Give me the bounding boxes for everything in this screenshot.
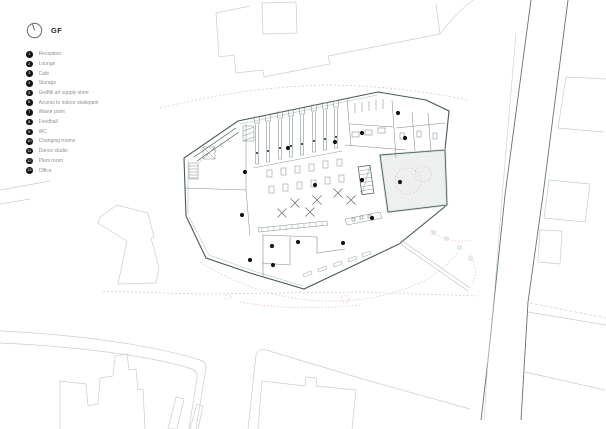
legend-number-badge: 11 <box>26 148 33 155</box>
legend-number-badge: 13 <box>26 167 33 174</box>
plan-marker <box>243 170 247 174</box>
legend-item: 5 Graffiti art supply store <box>26 90 99 97</box>
legend-item: 12 Plant room <box>26 158 99 165</box>
plan-marker <box>398 180 402 184</box>
legend-item-label: Storage <box>39 80 57 86</box>
legend-item-label: Office <box>39 168 52 174</box>
legend-item: 1 Reception <box>26 51 99 58</box>
north-arrow-icon <box>26 22 43 39</box>
legend-item-label: Access to indoor skatepark <box>39 100 99 106</box>
legend-number-badge: 7 <box>26 109 33 116</box>
dance-studio-room <box>380 150 447 212</box>
legend-number-badge: 6 <box>26 99 33 106</box>
legend-item-label: WC <box>39 129 47 135</box>
legend-item: 7 Waste point <box>26 109 99 116</box>
legend-item-label: Waste point <box>39 109 65 115</box>
plan-marker <box>396 111 400 115</box>
plan-marker <box>333 140 337 144</box>
plan-marker <box>313 183 317 187</box>
legend-item-label: Changing rooms <box>39 138 76 144</box>
plan-marker <box>248 258 252 262</box>
legend-list: 1 Reception 2 Lounge 3 Cafe 4 Storage 5 … <box>26 51 99 174</box>
legend-item-label: Lounge <box>39 61 56 67</box>
legend-item: 8 Foodhall <box>26 119 99 126</box>
legend-number-badge: 8 <box>26 119 33 126</box>
plan-marker <box>240 213 244 217</box>
plan-marker <box>403 136 407 140</box>
plan-marker <box>360 178 364 182</box>
floor-label: GF <box>51 26 62 35</box>
legend-item-label: Graffiti art supply store <box>39 90 89 96</box>
legend-item-label: Foodhall <box>39 119 58 125</box>
legend-item: 4 Storage <box>26 80 99 87</box>
legend-number-badge: 3 <box>26 70 33 77</box>
legend-panel: GF 1 Reception 2 Lounge 3 Cafe 4 Storage… <box>26 22 99 177</box>
legend-header: GF <box>26 22 99 39</box>
legend-number-badge: 1 <box>26 51 33 58</box>
legend-item-label: Reception <box>39 51 62 57</box>
legend-item: 11 Dance studio <box>26 148 99 155</box>
building-footprint <box>184 92 472 291</box>
streets <box>440 0 568 420</box>
plan-marker <box>271 263 275 267</box>
legend-item: 2 Lounge <box>26 61 99 68</box>
plan-marker <box>370 216 374 220</box>
plan-marker <box>286 146 290 150</box>
site-plan-page: GF 1 Reception 2 Lounge 3 Cafe 4 Storage… <box>0 0 606 429</box>
legend-item: 3 Cafe <box>26 70 99 77</box>
legend-item: 6 Access to indoor skatepark <box>26 99 99 106</box>
plan-marker <box>296 240 300 244</box>
legend-item: 9 WC <box>26 129 99 136</box>
legend-item-label: Cafe <box>39 71 50 77</box>
legend-number-badge: 5 <box>26 90 33 97</box>
legend-number-badge: 4 <box>26 80 33 87</box>
legend-number-badge: 10 <box>26 138 33 145</box>
legend-item: 10 Changing rooms <box>26 138 99 145</box>
plan-marker <box>360 131 364 135</box>
legend-item-label: Plant room <box>39 158 63 164</box>
plan-marker <box>341 241 345 245</box>
legend-item: 13 Office <box>26 167 99 174</box>
legend-item-label: Dance studio <box>39 148 68 154</box>
legend-number-badge: 2 <box>26 61 33 68</box>
legend-number-badge: 9 <box>26 129 33 136</box>
legend-number-badge: 12 <box>26 158 33 165</box>
plan-marker <box>270 244 274 248</box>
deck-edge <box>399 231 472 291</box>
